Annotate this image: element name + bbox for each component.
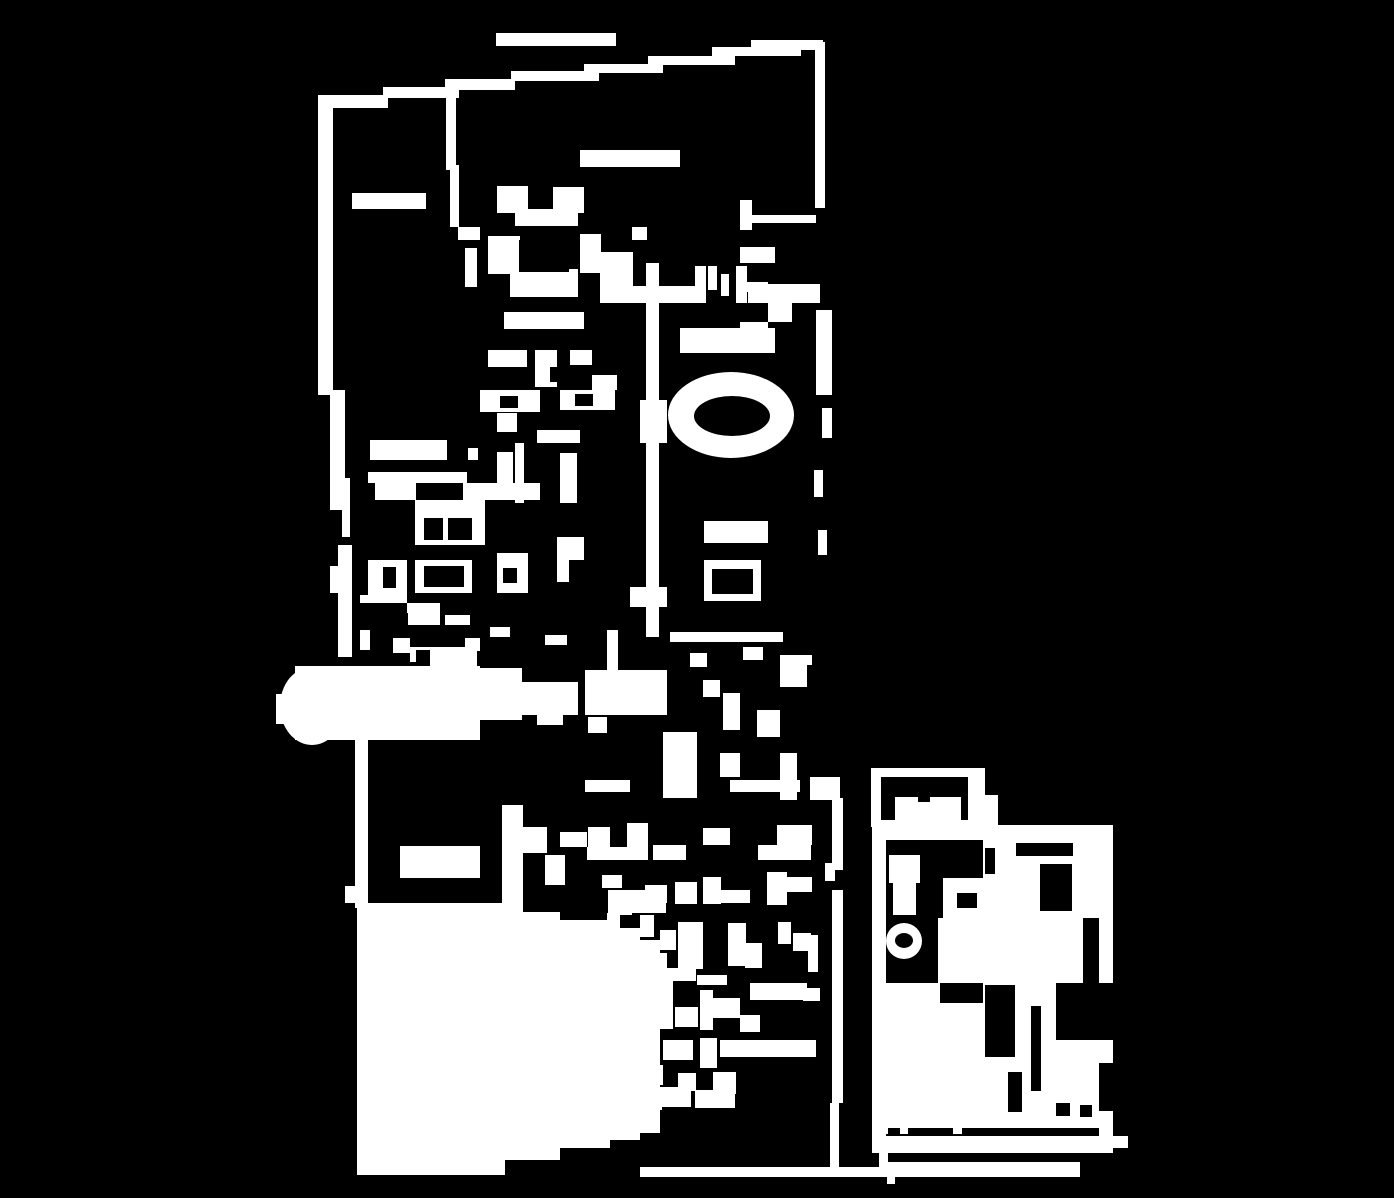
bedroom-bottom-wall [670,632,783,642]
bath2-speck [627,823,648,848]
bath2-speck [730,780,800,792]
sink-hole [503,568,517,583]
stair-blob [523,827,547,853]
floor-wedge [357,903,505,1175]
bath2-speck [602,875,622,888]
scale-bar-line-1 [872,1136,1128,1148]
fixture-blob [488,350,527,367]
hall-blob [607,630,618,673]
counter-block [632,227,647,240]
cabinet-hole [424,566,464,587]
wall-dash [743,647,763,660]
unit2-toilet-icon [889,855,920,883]
hall-blob [630,587,667,607]
hall-blob [537,713,563,725]
fixture-speck [757,710,780,737]
unit2-table-ring-hole [895,933,913,948]
left-wall-upper [318,95,333,395]
bath2-speck [675,882,697,904]
kitchen-blob [445,615,470,625]
kitchen-blob [408,608,440,625]
unit2-wall-line [1031,1006,1041,1091]
bath2-speck [758,845,811,860]
bath2-speck [608,890,666,913]
right-wall-seg [814,470,823,497]
vanity-hole [500,396,518,408]
bath2-speck [678,922,703,969]
bath2-speck [740,1015,760,1032]
bath2-speck [697,975,727,985]
bath2-speck [750,983,807,1000]
toilet-tank [504,312,584,329]
kitchen-blob [393,638,410,653]
right-wall-lower [832,890,843,1103]
scale-tick [953,1128,962,1134]
bath2-speck [703,828,730,845]
bath2-speck [808,935,818,972]
scale-bar-ext [860,1167,887,1173]
bath2-speck [652,1098,662,1110]
hall-blob [557,560,569,582]
unit2-dot [1080,1105,1092,1117]
door-swing-icon [695,266,706,303]
bath2-speck [675,1007,698,1027]
wedge-corner [345,886,365,903]
unit2-counter-hole [957,893,977,908]
bed-headboard [680,328,775,353]
toilet-seat [580,234,601,273]
wall-notch [740,200,752,230]
cabinet-hole [383,567,396,588]
bath2-speck [713,998,740,1018]
wall-dash [560,453,577,503]
bottom-wall-line [640,1167,890,1177]
fixture-speck [780,655,807,687]
label-blob-2 [580,150,680,167]
fixture-blob [537,430,580,443]
kitchen-counter [463,483,540,500]
bath-wall [465,248,477,287]
scale-bar-line-2 [887,1162,1080,1177]
bedroom-top-wall [615,286,698,303]
bath2-speck [720,890,750,903]
scale-tick [878,1126,888,1134]
kitchen-counter [468,448,478,460]
label-blob-top [496,33,616,46]
unit2-border-gap [1099,1063,1113,1111]
hall-blob [557,537,584,560]
kitchen-counter [375,483,416,500]
unit2-counter-hole [1040,864,1072,911]
unit2-wall-line [1008,1072,1022,1112]
furniture-bar [704,521,768,543]
right-wall-upper [815,42,825,208]
binarized-floor-plan-screenshot [0,0,1394,1198]
stair-wall-column [355,738,368,908]
bath2-speck [695,1090,735,1108]
bath2-speck [700,990,713,1030]
dark-room-label-blob [400,846,480,878]
stair-blob [502,805,523,920]
toilet-bowl-hole [519,240,569,272]
left-wall-piece [330,566,348,593]
hall-floor [430,650,477,670]
kitchen-counter-line [368,472,467,483]
top-edge-step [445,79,515,90]
unit2-wall-block [940,983,983,1003]
kitchen-blob [360,595,407,603]
bath-wall [450,165,459,227]
unit2-border-gap [1056,983,1113,1040]
left-wall-lower [338,545,352,657]
unit2-toilet-icon [893,883,916,915]
vanity-hole [575,394,593,406]
interior-wall-horizontal [752,215,816,223]
bath2-speck [587,847,648,860]
scale-tick [900,1128,908,1134]
bath2-speck [700,1038,717,1068]
bedroom-top-wall [748,284,820,303]
floor-patch [663,732,697,798]
left-room-label-blob [352,193,426,209]
bath2-speck [573,943,591,956]
toilet-seat [510,269,578,297]
bath2-speck [728,923,746,966]
bath2-speck [648,992,673,1029]
door-swing-icon [708,266,717,290]
right-wall-seg [822,408,832,438]
bath2-speck [803,988,820,1001]
hall-floor [585,670,667,715]
unit2-wall-block [985,985,1015,1057]
hall-blob [588,717,607,733]
kitchen-counter [370,440,447,460]
right-wall-seg [818,530,827,555]
door-swing-icon [721,274,729,296]
bath2-speck [585,780,630,792]
toilet-icon [515,209,578,226]
bath2-speck [703,877,721,904]
bath2-speck [777,825,812,845]
bedroom-left-wall [646,263,659,637]
bath2-speck [745,943,762,968]
fixture-blob [592,375,617,390]
scale-bar-tab [887,1177,895,1184]
unit2-dot [1056,1103,1070,1116]
unit2-wall-hole [985,848,995,874]
floor-patch [780,753,797,800]
kitchen-blob [360,630,370,650]
wall-blob [740,247,775,263]
stove-burner-hole [424,518,443,540]
unit2-counter-hole [1016,843,1073,856]
fixture-hole [550,367,570,382]
top-edge-step [584,64,663,73]
bath2-speck [663,968,696,981]
stair-blob [545,855,565,885]
floor-patch [810,777,840,800]
fixture-speck [640,915,654,937]
floor-patch [720,753,740,777]
right-wall-lower [832,798,843,870]
hall-floor [477,668,522,720]
unit2-tick-hole [943,783,953,793]
fixture-blob [497,413,517,432]
bath-wall [458,227,480,240]
label-bar-blob [720,1040,816,1057]
bath2-speck [607,913,620,946]
left-wall-piece [342,478,350,537]
bath2-speck [648,1065,663,1085]
round-table-stem [276,694,288,724]
table-ring-hole [694,396,770,436]
bath2-speck [778,922,791,944]
furniture-box-hole [712,569,753,594]
toilet-icon-notch [528,197,553,209]
kitchen-blob [545,635,567,645]
floor-wedge [505,912,560,1160]
hall-floor-main [295,666,480,740]
door-swing-icon [736,266,747,303]
bath2-speck [787,877,812,892]
bath2-speck [767,872,787,905]
hall-floor [520,682,578,715]
right-wall-bottom [830,1103,839,1177]
fixture-blob [570,350,592,365]
bath2-speck [632,965,649,980]
right-wall-seg [816,310,832,395]
bath2-speck [663,1040,693,1060]
fixture-speck [723,693,740,730]
unit2-tick-hole [918,792,930,802]
kitchen-blob [490,627,510,637]
top-edge-step [648,56,735,65]
unit2-mid-floor [938,918,1083,983]
top-right-corner-wall [751,40,823,50]
corridor-patch [640,400,667,443]
bath2-speck [560,832,587,847]
bath2-speck [588,827,610,847]
stove-burner-hole [448,518,472,540]
fixture-speck [690,653,707,667]
fixture-speck [703,680,720,697]
fixture-speck [660,930,676,950]
bath2-speck [653,845,686,860]
left-room-wall [446,98,456,170]
